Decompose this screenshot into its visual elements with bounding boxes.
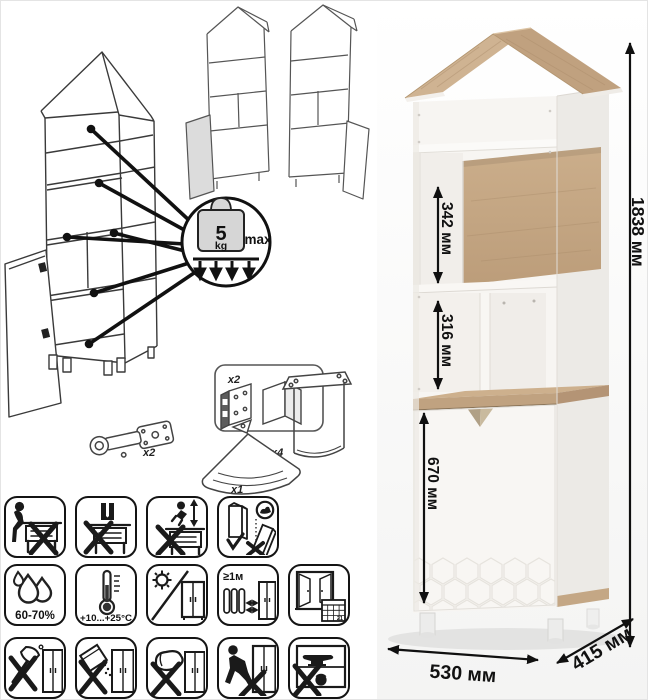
no-direct-sunlight-icon: [146, 564, 208, 626]
no-standing-icon: [75, 496, 137, 558]
handle-part: [202, 434, 300, 494]
oak-back-panel: [463, 147, 601, 285]
no-scouring-pads-icon: [146, 637, 208, 699]
door-dimension-label: 670 мм: [424, 457, 441, 510]
middle-dimension-label: 316 мм: [438, 314, 455, 367]
height-dimension-label: 1838 мм: [628, 197, 648, 267]
cabinet-wireframe-left-door: [186, 7, 269, 199]
furniture-catalog-sheet: 5 kg max: [0, 0, 648, 700]
no-abrasive-powders-icon: [75, 637, 137, 699]
max-load-suffix: max: [244, 232, 272, 247]
handle-qty-label: x1: [230, 484, 243, 496]
bracket-qty-label: x2: [227, 374, 240, 386]
humidity-range-icon: 60-70%: [4, 564, 66, 626]
carry-upright-icon: [217, 496, 279, 558]
max-load-unit: kg: [215, 240, 227, 252]
cabinet-wireframe-large: [5, 52, 157, 417]
humidity-label: 60-70%: [15, 610, 55, 622]
no-heavy-loads-icon: [288, 637, 350, 699]
cabinet-wireframe-right-door: [289, 5, 369, 199]
max-load-badge: 5 kg max: [182, 198, 272, 286]
width-dimension-label: 530 мм: [429, 661, 497, 688]
assembly-diagram: 5 kg max: [1, 1, 381, 496]
temperature-label: +10...+25°C: [80, 613, 133, 623]
no-sitting-icon: [4, 496, 66, 558]
upper-dimension-label: 342 мм: [438, 202, 455, 255]
no-jumping-icon: [146, 496, 208, 558]
ventilate-room-icon: 21: [288, 564, 350, 626]
product-photo: 342 мм 316 мм 670 мм 1838 мм 530 мм 415 …: [377, 1, 648, 700]
heater-distance-label: ≥1м: [223, 571, 243, 583]
shelf-load-dots: [63, 125, 119, 349]
no-sharp-tools-icon: [4, 637, 66, 699]
hinge-part: [88, 421, 175, 464]
temperature-range-icon: +10...+25°C: [75, 564, 137, 626]
hinge-qty-label: x2: [142, 447, 155, 459]
load-callout-lines: [67, 129, 194, 344]
keep-1m-from-heaters-icon: ≥1м: [217, 564, 279, 626]
calendar-day-label: 21: [337, 616, 343, 622]
no-dragging-icon: [217, 637, 279, 699]
